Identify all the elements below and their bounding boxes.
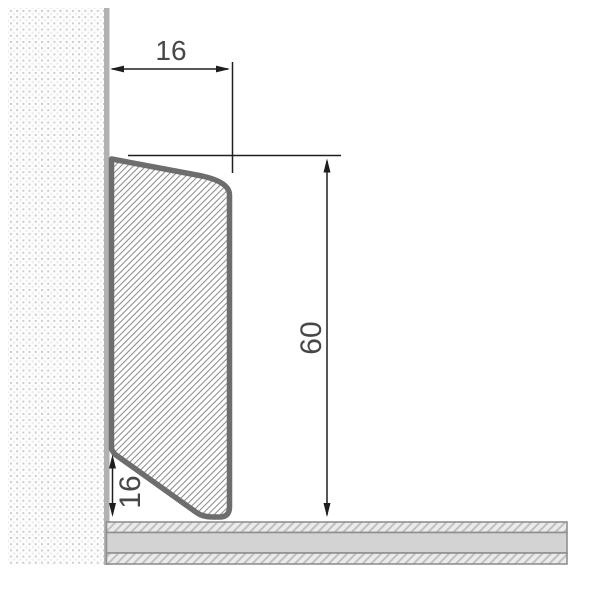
- bottom-dimension-label: 16: [114, 475, 147, 508]
- wall-edge-band: [104, 8, 110, 565]
- arrowhead-right-icon: [216, 66, 230, 73]
- wall-stipple-area: [8, 8, 104, 565]
- floor-bottom-hatch-layer: [107, 553, 568, 564]
- skirting-profile-outline: [112, 159, 230, 517]
- arrowhead-left-icon: [110, 66, 124, 73]
- floor-section: [107, 522, 568, 564]
- arrowhead-down-icon: [324, 503, 331, 517]
- technical-drawing-canvas: 16 60 16: [0, 0, 604, 604]
- skirting-profile-drawing: 16 60 16: [0, 0, 604, 604]
- arrowhead-up-icon: [324, 159, 331, 173]
- top-width-dimension-label: 16: [155, 35, 186, 66]
- floor-middle-layer: [107, 533, 568, 554]
- floor-top-hatch-layer: [107, 522, 568, 533]
- height-dimension-label: 60: [295, 321, 328, 354]
- wall-section: [8, 8, 110, 565]
